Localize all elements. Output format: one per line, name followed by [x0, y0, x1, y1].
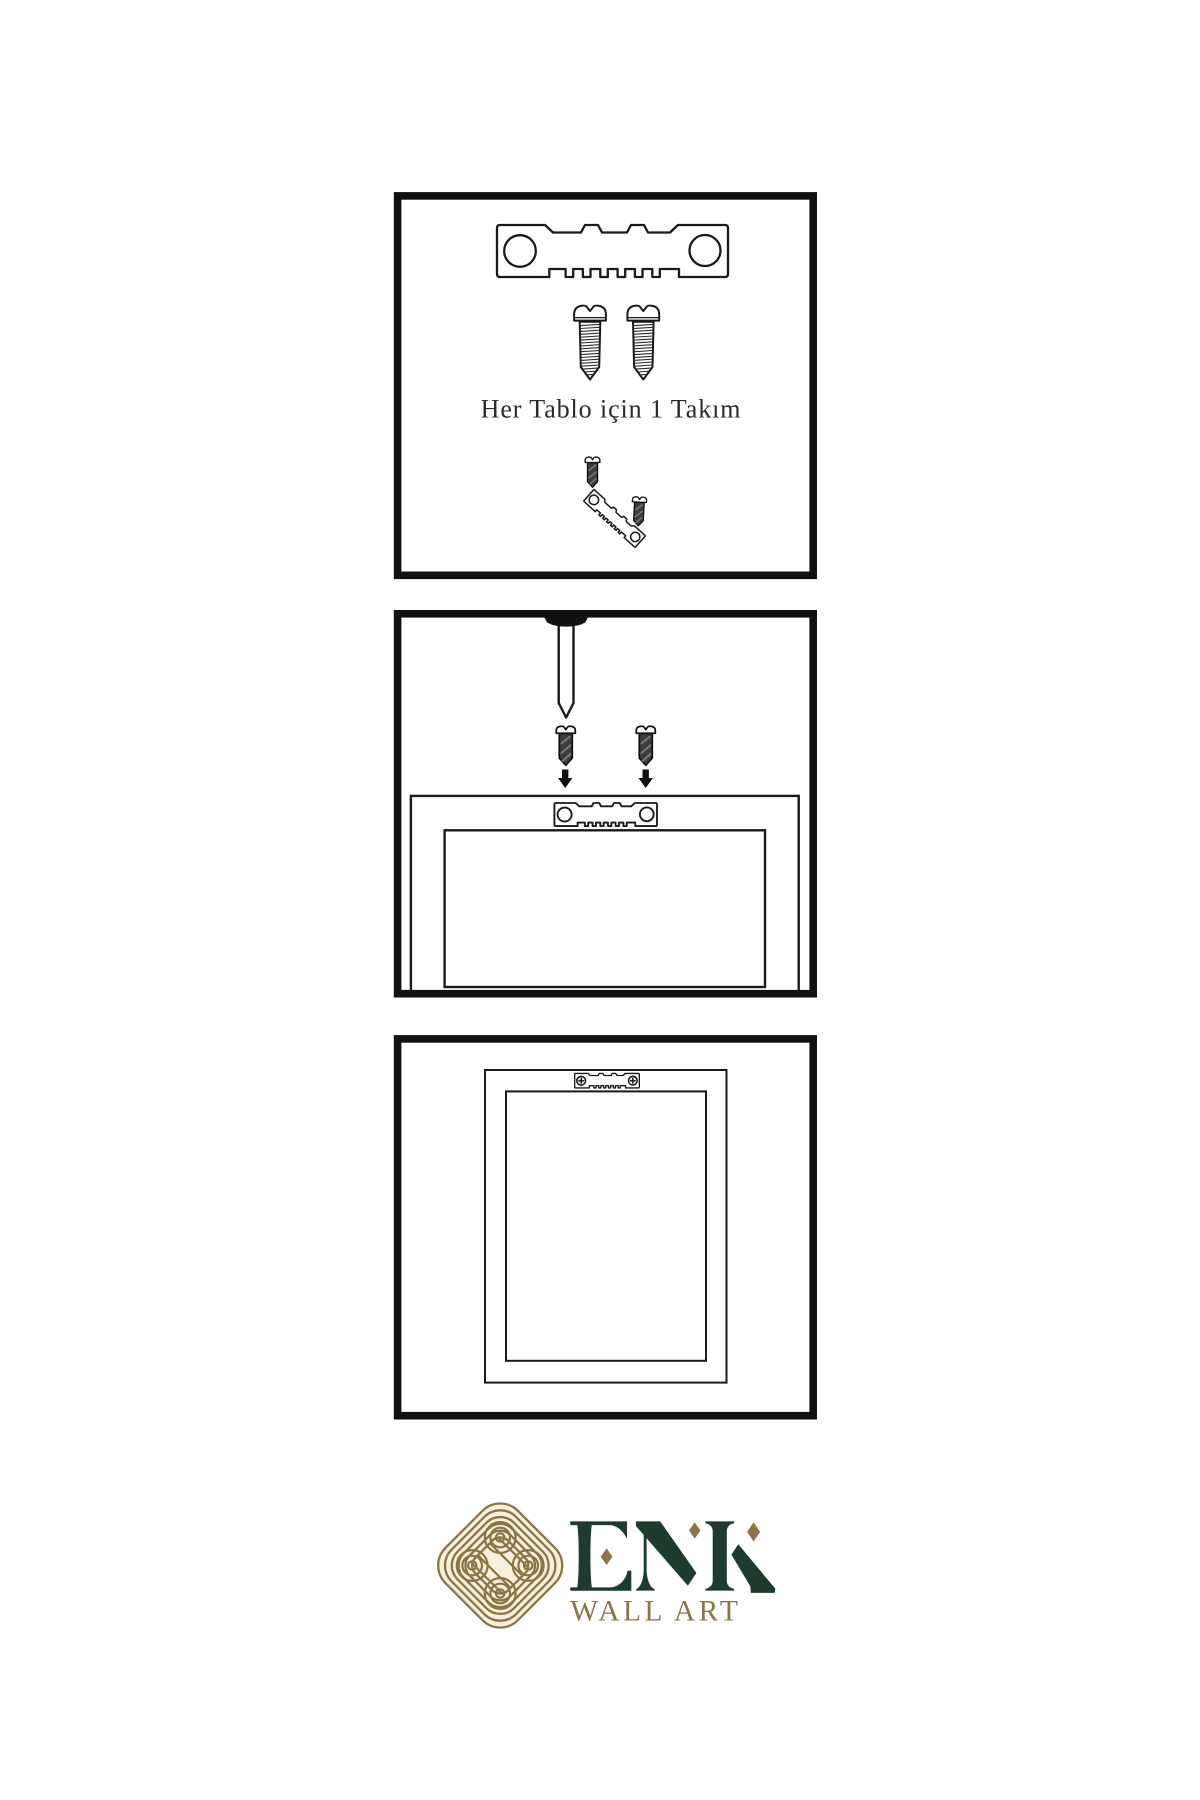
- svg-text:WALL ART: WALL ART: [570, 1596, 741, 1628]
- svg-text:Her Tablo için 1 Takım: Her Tablo için 1 Takım: [481, 395, 742, 424]
